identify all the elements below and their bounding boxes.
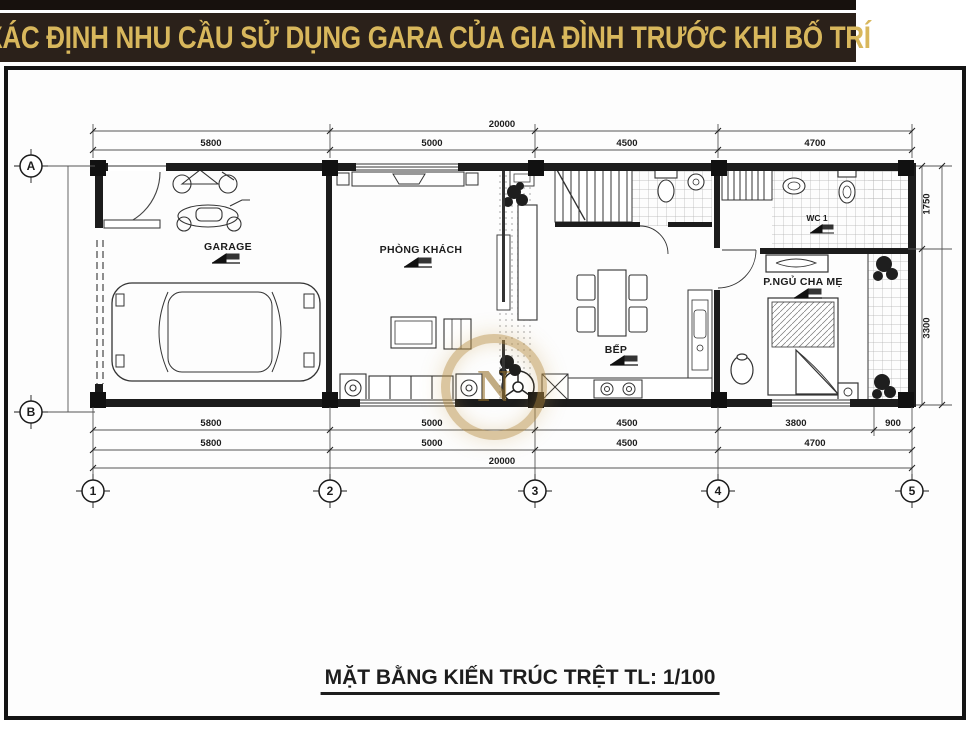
room-label-garage: GARAGE: [204, 241, 252, 253]
watermark-logo: N: [441, 334, 547, 440]
top-strip: [0, 0, 856, 10]
drawing-caption: MẶT BẰNG KIẾN TRÚC TRỆT TL: 1/100: [321, 666, 720, 695]
dim-top-4: 4700: [804, 138, 825, 149]
grid-row-b: B: [27, 405, 36, 419]
grid-col-3: 3: [532, 484, 539, 498]
dim-b1-2: 5000: [421, 418, 442, 429]
dim-right-1: 1750: [922, 193, 933, 214]
room-label-kitchen: BẾP: [605, 344, 628, 356]
grid-row-a: A: [27, 159, 36, 173]
room-label-living: PHÒNG KHÁCH: [380, 244, 463, 256]
dim-b2-4: 4700: [804, 438, 825, 449]
dim-b2-2: 5000: [421, 438, 442, 449]
dim-bottom-total: 20000: [489, 456, 515, 467]
banner-title: XÁC ĐỊNH NHU CẦU SỬ DỤNG GARA CỦA GIA ĐÌ…: [0, 19, 871, 57]
dim-top-2: 5000: [421, 138, 442, 149]
dim-right-2: 3300: [922, 317, 933, 338]
page: XÁC ĐỊNH NHU CẦU SỬ DỤNG GARA CỦA GIA ĐÌ…: [0, 0, 975, 750]
dim-b2-1: 5800: [200, 438, 221, 449]
dim-top-total: 20000: [489, 119, 515, 130]
grid-col-2: 2: [327, 484, 334, 498]
dim-top-3: 4500: [616, 138, 637, 149]
dim-b1-3: 4500: [616, 418, 637, 429]
dim-b2-3: 4500: [616, 438, 637, 449]
room-label-wc1: WC 1: [806, 213, 827, 223]
grid-col-4: 4: [715, 484, 722, 498]
dim-top-1: 5800: [200, 138, 221, 149]
dim-b1-4: 3800: [785, 418, 806, 429]
watermark-letter: N: [477, 359, 510, 412]
grid-col-1: 1: [90, 484, 97, 498]
grid-col-5: 5: [909, 484, 916, 498]
title-banner: XÁC ĐỊNH NHU CẦU SỬ DỤNG GARA CỦA GIA ĐÌ…: [0, 13, 856, 62]
room-label-bedroom: P.NGỦ CHA MẸ: [763, 276, 842, 288]
dim-b1-1: 5800: [200, 418, 221, 429]
dim-b1-5: 900: [885, 418, 901, 429]
